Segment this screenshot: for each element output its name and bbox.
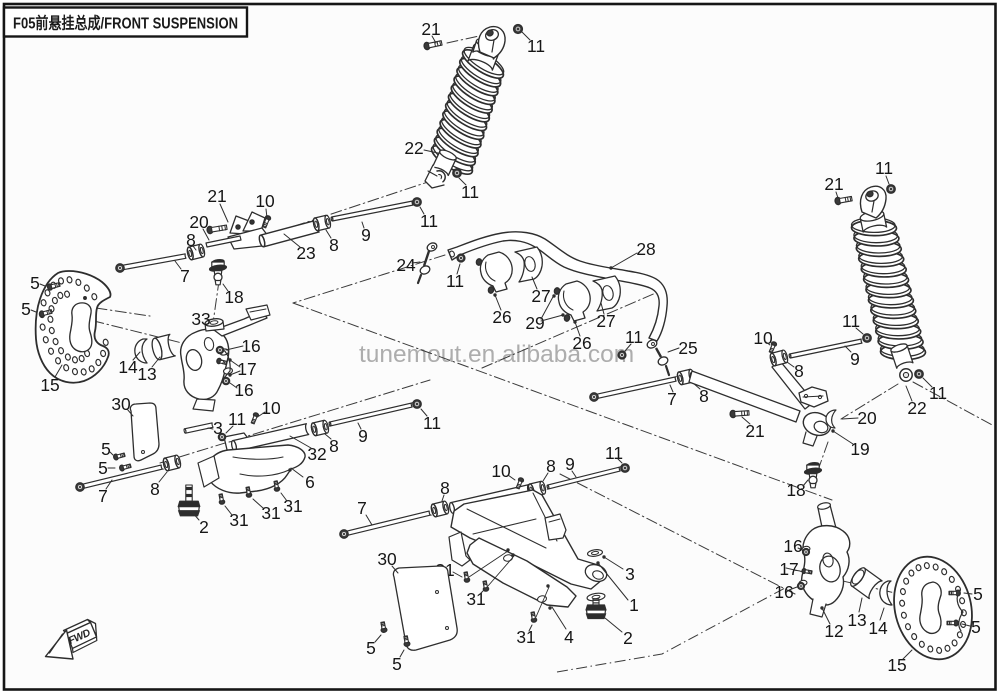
svg-text:26: 26 [572, 333, 591, 353]
svg-text:2: 2 [199, 517, 209, 537]
svg-text:11: 11 [423, 413, 441, 433]
svg-text:24: 24 [396, 255, 416, 275]
svg-text:11: 11 [625, 327, 643, 347]
svg-text:21: 21 [207, 186, 226, 206]
svg-text:31: 31 [466, 589, 485, 609]
svg-text:31: 31 [283, 496, 302, 516]
svg-text:16: 16 [774, 582, 793, 602]
svg-text:11: 11 [875, 158, 893, 178]
svg-text:21: 21 [745, 421, 764, 441]
svg-text:17: 17 [237, 359, 256, 379]
svg-text:26: 26 [492, 307, 511, 327]
svg-text:27: 27 [596, 311, 615, 331]
svg-text:8: 8 [150, 479, 160, 499]
svg-text:10: 10 [491, 461, 510, 481]
svg-text:22: 22 [907, 398, 926, 418]
svg-text:30: 30 [111, 394, 130, 414]
svg-text:19: 19 [850, 439, 869, 459]
svg-text:9: 9 [358, 426, 368, 446]
svg-text:2: 2 [623, 628, 633, 648]
svg-text:tunemout.en.alibaba.com: tunemout.en.alibaba.com [359, 341, 634, 368]
svg-text:14: 14 [118, 357, 138, 377]
svg-text:18: 18 [786, 480, 805, 500]
svg-text:5: 5 [98, 458, 108, 478]
svg-text:5: 5 [101, 439, 111, 459]
svg-text:5: 5 [366, 638, 376, 658]
svg-text:14: 14 [868, 618, 888, 638]
svg-text:11: 11 [446, 271, 464, 291]
svg-text:10: 10 [255, 191, 274, 211]
svg-text:10: 10 [261, 398, 280, 418]
svg-text:33: 33 [191, 309, 210, 329]
svg-text:8: 8 [186, 230, 196, 250]
svg-text:13: 13 [137, 364, 156, 384]
svg-text:7: 7 [180, 266, 190, 286]
svg-text:3: 3 [625, 564, 635, 584]
svg-text:16: 16 [783, 536, 802, 556]
svg-text:5: 5 [971, 617, 981, 637]
svg-text:30: 30 [377, 549, 396, 569]
svg-text:4: 4 [564, 627, 574, 647]
svg-text:31: 31 [261, 503, 280, 523]
svg-text:9: 9 [850, 349, 860, 369]
svg-text:12: 12 [824, 621, 843, 641]
svg-text:16: 16 [234, 380, 253, 400]
svg-text:8: 8 [440, 478, 450, 498]
svg-text:31: 31 [516, 627, 535, 647]
svg-text:9: 9 [361, 225, 371, 245]
svg-text:13: 13 [847, 610, 866, 630]
svg-text:5: 5 [973, 584, 983, 604]
svg-text:16: 16 [241, 336, 260, 356]
svg-text:9: 9 [565, 454, 575, 474]
svg-text:11: 11 [461, 182, 479, 202]
svg-text:20: 20 [857, 408, 876, 428]
svg-text:7: 7 [667, 389, 677, 409]
svg-text:11: 11 [842, 311, 860, 331]
svg-text:21: 21 [824, 174, 843, 194]
svg-text:15: 15 [40, 375, 59, 395]
svg-text:28: 28 [636, 239, 655, 259]
svg-text:F05前悬挂总成/FRONT SUSPENSION: F05前悬挂总成/FRONT SUSPENSION [13, 14, 238, 33]
svg-text:31: 31 [229, 510, 248, 530]
svg-text:22: 22 [404, 138, 423, 158]
svg-text:7: 7 [357, 498, 367, 518]
svg-text:21: 21 [421, 19, 440, 39]
svg-text:8: 8 [794, 361, 804, 381]
svg-text:5: 5 [21, 299, 31, 319]
svg-text:1: 1 [629, 595, 639, 615]
svg-text:20: 20 [189, 212, 208, 232]
svg-text:11: 11 [420, 211, 438, 231]
svg-text:11: 11 [228, 409, 246, 429]
svg-text:29: 29 [525, 313, 544, 333]
svg-text:27: 27 [531, 286, 550, 306]
svg-text:17: 17 [779, 559, 798, 579]
svg-text:5: 5 [30, 273, 40, 293]
svg-text:25: 25 [678, 338, 697, 358]
svg-text:6: 6 [305, 472, 315, 492]
svg-text:11: 11 [605, 443, 623, 463]
